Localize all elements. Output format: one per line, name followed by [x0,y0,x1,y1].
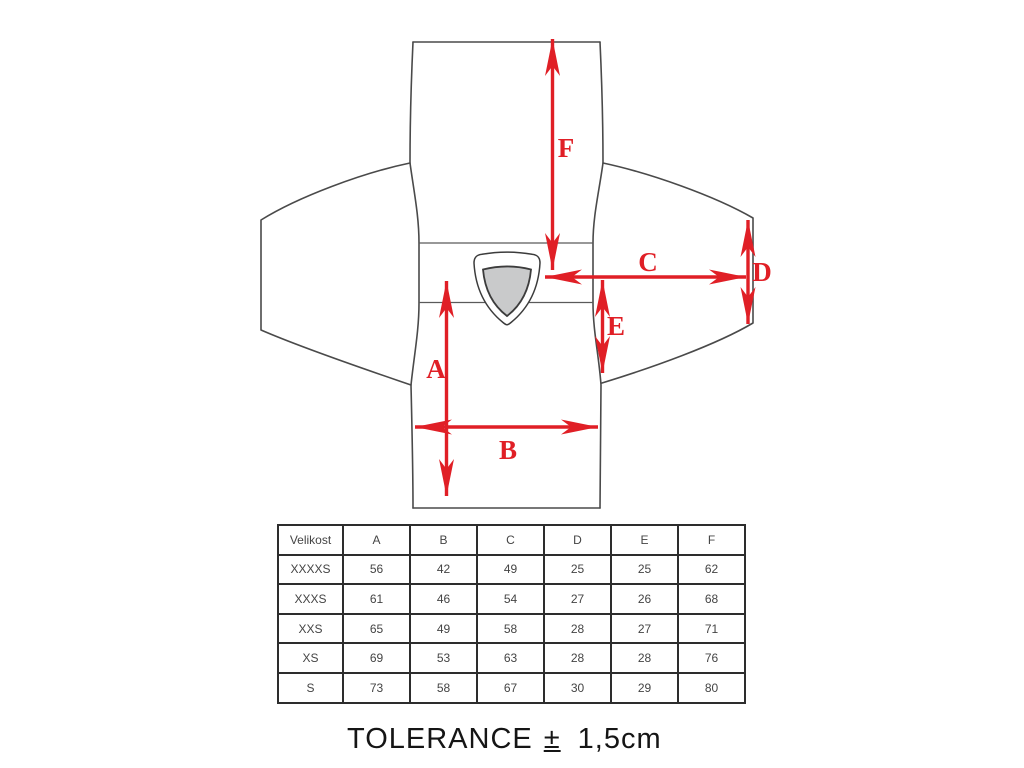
tolerance-value: 1,5cm [578,723,662,755]
dim-label-c: C [638,247,658,277]
column-header: F [678,525,745,555]
dim-label-b: B [499,435,517,465]
measurement-cell: 63 [477,643,544,673]
measurement-cell: 61 [343,584,410,614]
measurement-cell: 69 [343,643,410,673]
measurement-cell: 62 [678,555,745,585]
measurement-cell: 53 [410,643,477,673]
table-row: XXXS614654272668 [278,584,745,614]
measurement-cell: 56 [343,555,410,585]
measurement-cell: 54 [477,584,544,614]
measurement-cell: 58 [477,614,544,644]
dim-label-a: A [426,354,446,384]
column-header: D [544,525,611,555]
table-row: S735867302980 [278,673,745,703]
measurement-cell: 25 [611,555,678,585]
dim-label-f: F [558,133,575,163]
measurement-cell: 49 [410,614,477,644]
column-header: C [477,525,544,555]
measurement-cell: 28 [544,643,611,673]
size-label-cell: XXXXS [278,555,343,585]
table-row: XXXXS564249252562 [278,555,745,585]
measurement-cell: 71 [678,614,745,644]
dimension-label-group: F A B C D E [426,133,772,465]
body-left-edge [410,42,419,508]
left-sleeve [261,163,411,385]
size-chart-page: F A B C D E VelikostABCDEF XXXXS56424925… [0,0,1024,768]
measurement-cell: 29 [611,673,678,703]
measurement-cell: 27 [611,614,678,644]
measurement-cell: 28 [611,643,678,673]
plus-minus-symbol: ± [544,723,561,755]
measurement-cell: 68 [678,584,745,614]
measurement-cell: 73 [343,673,410,703]
right-sleeve [602,163,753,383]
measurement-cell: 67 [477,673,544,703]
measurement-cell: 27 [544,584,611,614]
dimension-arrows [415,39,748,496]
measurement-cell: 80 [678,673,745,703]
measurement-cell: 58 [410,673,477,703]
column-header: E [611,525,678,555]
measurement-cell: 46 [410,584,477,614]
measurement-cell: 49 [477,555,544,585]
column-header: A [343,525,410,555]
measurement-cell: 42 [410,555,477,585]
tolerance-label: TOLERANCE [347,723,533,755]
column-header: B [410,525,477,555]
measurement-cell: 28 [544,614,611,644]
measurement-cell: 25 [544,555,611,585]
size-table: VelikostABCDEF XXXXS564249252562XXXS6146… [277,524,746,704]
collar-emblem [474,252,540,325]
dim-label-d: D [752,257,772,287]
size-label-cell: XXS [278,614,343,644]
table-row: XXS654958282771 [278,614,745,644]
dim-label-e: E [607,311,625,341]
size-table-header: VelikostABCDEF [278,525,745,555]
measurement-cell: 26 [611,584,678,614]
size-label-cell: XXXS [278,584,343,614]
measurement-cell: 30 [544,673,611,703]
size-label-cell: S [278,673,343,703]
measurement-cell: 76 [678,643,745,673]
size-label-cell: XS [278,643,343,673]
body-right-edge [593,42,603,508]
column-header: Velikost [278,525,343,555]
measurement-cell: 65 [343,614,410,644]
table-row: XS695363282876 [278,643,745,673]
size-table-body: XXXXS564249252562XXXS614654272668XXS6549… [278,555,745,703]
tolerance-note: TOLERANCE±1,5cm [347,723,662,756]
header-row: VelikostABCDEF [278,525,745,555]
